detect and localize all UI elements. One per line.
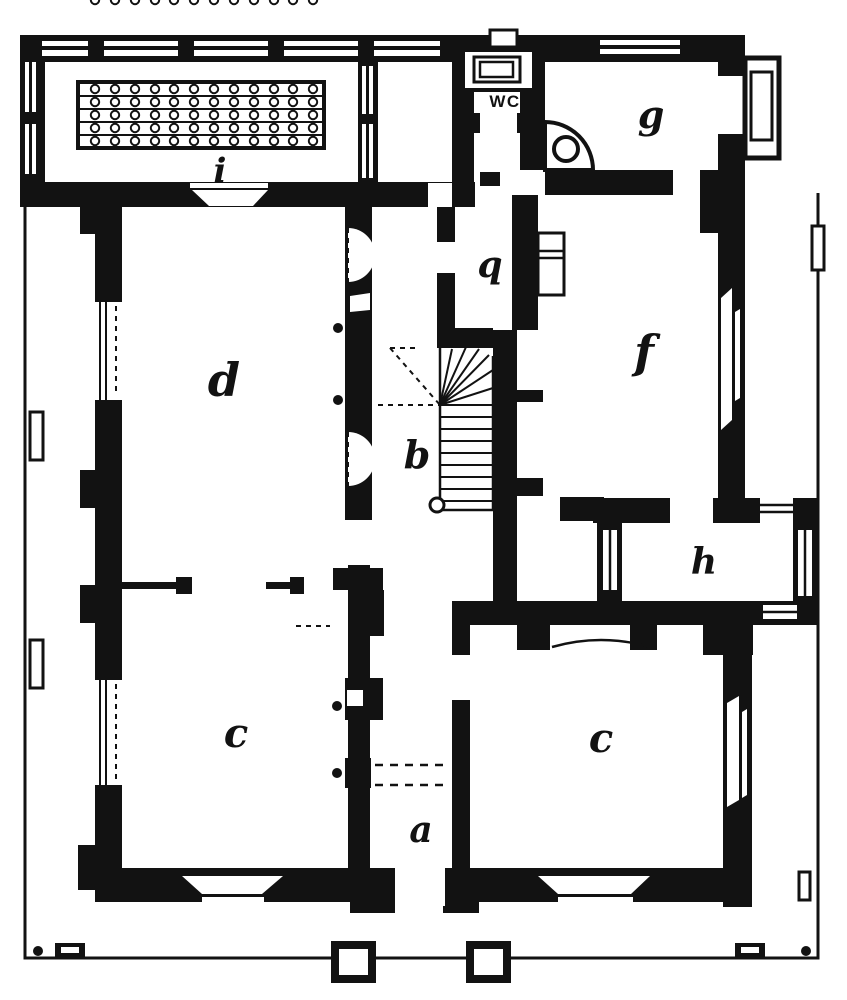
room-c-left-label: c (224, 710, 248, 757)
room-b-label: b (404, 432, 431, 477)
room-wc-label: WC (489, 92, 520, 111)
room-h-label: h (691, 541, 717, 583)
floor-plan-figure: i WC g q d b f h c c a (0, 0, 847, 1000)
room-q-label: q (477, 244, 502, 286)
room-i-label: i (214, 151, 227, 191)
room-d-label: d (208, 353, 240, 407)
room-c-right-label: c (589, 715, 613, 762)
room-g-label: g (638, 92, 665, 137)
floor-plan-drawing: i WC g q d b f h c c a (0, 0, 847, 1000)
room-a-label: a (409, 809, 432, 851)
